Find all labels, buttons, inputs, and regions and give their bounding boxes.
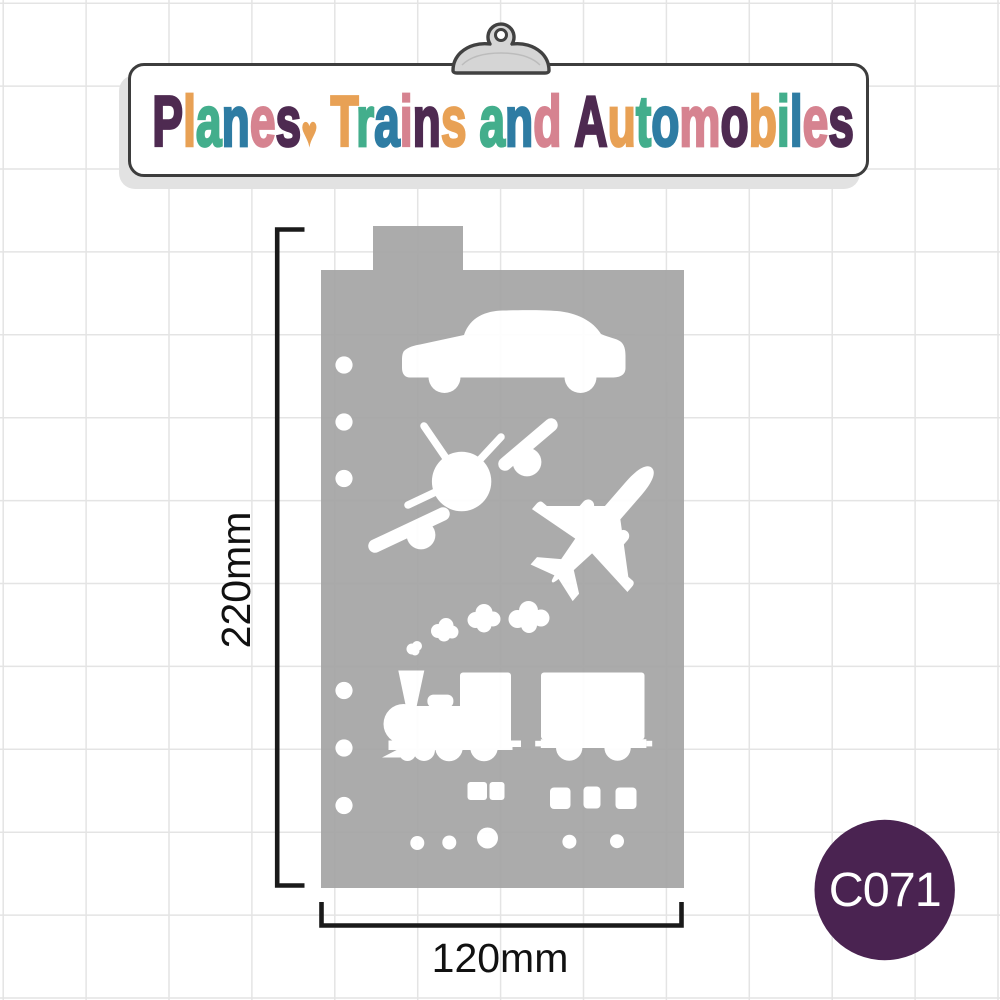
svg-text:120mm: 120mm	[432, 935, 569, 981]
svg-text:C071: C071	[829, 863, 941, 917]
svg-text:220mm: 220mm	[213, 512, 259, 649]
